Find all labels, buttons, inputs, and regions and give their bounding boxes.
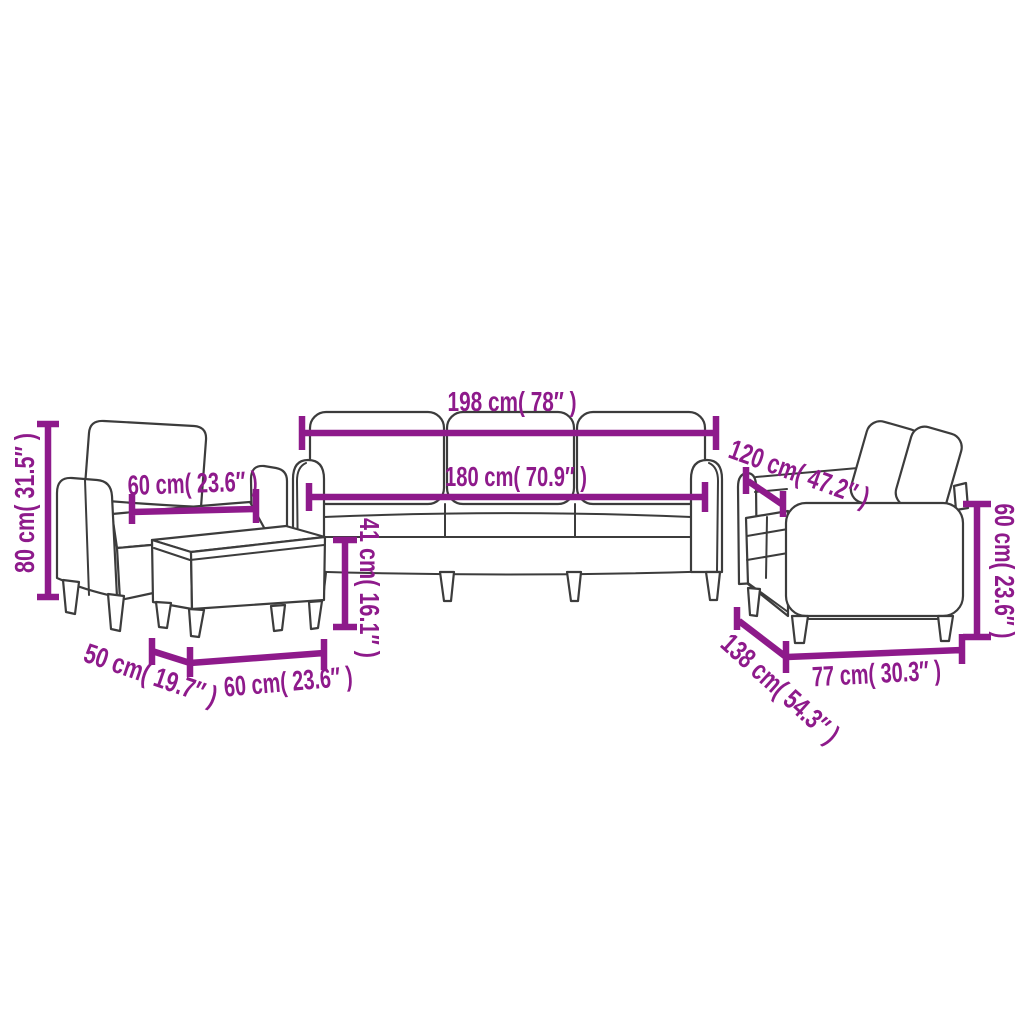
- dim-line-armchair-height: [37, 424, 59, 597]
- dim-label-footstool-width: 60 cm( 23.6″ ): [223, 660, 354, 702]
- armchair-leg: [108, 594, 124, 631]
- sofa3-seat-dividers: [445, 504, 575, 537]
- footstool-leg: [309, 601, 322, 629]
- sofa-set-dimension-diagram: 80 cm( 31.5″ ) 60 cm( 23.6″ ) 198 cm( 78…: [0, 0, 1024, 1024]
- sofa3-back-cushion-left: [310, 412, 444, 504]
- footstool: [152, 526, 325, 637]
- dim-label-sofa2-seat-width: 77 cm( 30.3″ ): [811, 655, 941, 693]
- footstool-leg: [189, 609, 204, 637]
- sofa3-back-cushion-right: [577, 412, 705, 504]
- sofa2-armrest-panel: [786, 503, 963, 616]
- dim-label-sofa3-overall-width: 198 cm( 78″ ): [448, 386, 577, 417]
- footstool-leg: [156, 602, 171, 628]
- sofa3-leg: [567, 572, 581, 601]
- dim-label-armchair-height: 80 cm( 31.5″ ): [9, 433, 40, 573]
- dim-label-sofa2-back-height: 60 cm( 23.6″ ): [989, 504, 1020, 639]
- sofa2-leg: [792, 616, 808, 643]
- footstool-leg: [271, 605, 285, 631]
- dim-label-sofa3-inner-width: 180 cm( 70.9″ ): [445, 461, 587, 492]
- armchair-leg: [63, 580, 79, 614]
- dim-label-seat-height: 41 cm( 16.1″ ): [354, 518, 385, 658]
- sofa3-leg: [440, 572, 454, 601]
- dim-label-armchair-seat-width: 60 cm( 23.6″ ): [127, 465, 258, 501]
- sofa2-leg: [938, 616, 953, 641]
- sofa2-leg: [748, 588, 760, 616]
- diagram-svg: 80 cm( 31.5″ ) 60 cm( 23.6″ ) 198 cm( 78…: [0, 0, 1024, 1024]
- dim-line-seat-height: [333, 540, 357, 627]
- dim-line-sofa2-back-height: [963, 504, 991, 637]
- sofa3-seat-front-edge: [324, 513, 691, 517]
- sofa3-leg: [706, 572, 720, 600]
